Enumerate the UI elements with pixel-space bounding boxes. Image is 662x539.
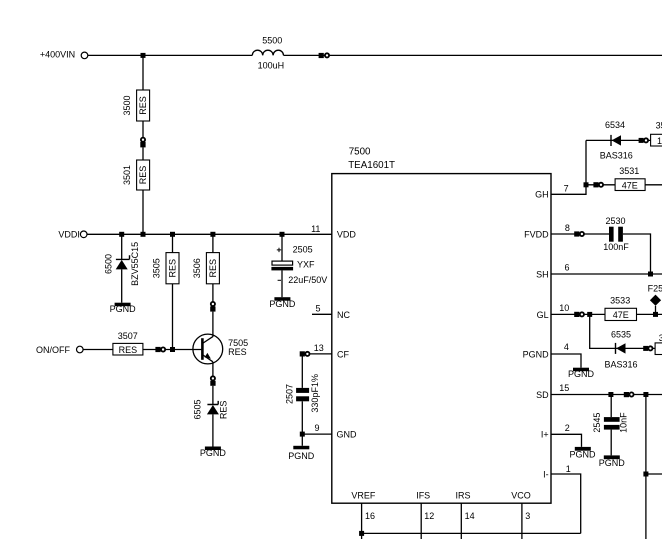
svg-text:RES: RES [167,259,177,278]
svg-text:6534: 6534 [605,120,625,130]
svg-text:NC: NC [337,310,350,320]
svg-text:SH: SH [536,269,549,279]
svg-text:F255: F255 [648,283,662,293]
svg-text:9: 9 [315,423,320,433]
svg-text:5: 5 [316,303,321,313]
svg-text:PGND: PGND [269,299,296,309]
svg-text:BZV55C15: BZV55C15 [130,242,140,286]
svg-text:PGND: PGND [569,449,596,459]
svg-text:VCO: VCO [511,491,531,501]
svg-text:2: 2 [565,423,570,433]
svg-text:100uH: 100uH [258,61,285,71]
svg-text:3530: 3530 [656,121,662,131]
svg-text:3533: 3533 [610,296,630,306]
svg-text:IRS: IRS [456,491,471,501]
svg-text:VREF: VREF [351,491,376,501]
svg-text:100nF: 100nF [603,242,629,252]
svg-text:I-: I- [543,469,549,479]
svg-text:TEA1601T: TEA1601T [348,160,395,171]
svg-text:BAS316: BAS316 [600,150,633,160]
svg-text:IFS: IFS [416,491,430,501]
svg-text:6535: 6535 [611,329,631,339]
svg-text:YXF: YXF [297,259,315,269]
svg-text:GL: GL [537,310,549,320]
svg-text:ON/OFF: ON/OFF [36,345,70,355]
svg-text:10nF: 10nF [619,412,629,433]
svg-text:RES: RES [219,401,229,420]
svg-text:FVDD: FVDD [524,230,549,240]
svg-text:PGND: PGND [288,451,315,461]
svg-text:VDD: VDD [337,230,357,240]
svg-text:5500: 5500 [262,35,282,45]
svg-text:22uF/50V: 22uF/50V [288,275,327,285]
svg-text:+400VIN: +400VIN [40,50,75,60]
svg-text:3531: 3531 [619,166,639,176]
svg-text:10: 10 [559,303,569,313]
svg-text:2507: 2507 [284,384,294,404]
svg-text:2505: 2505 [293,244,313,254]
svg-text:SD: SD [536,390,549,400]
svg-text:PGND: PGND [110,304,137,314]
svg-text:PGND: PGND [523,349,550,359]
svg-text:13: 13 [314,343,324,353]
svg-text:15: 15 [559,383,569,393]
svg-text:16: 16 [365,511,375,521]
svg-text:RES: RES [138,166,148,185]
svg-text:BAS316: BAS316 [604,360,637,370]
svg-text:3505: 3505 [151,258,161,278]
svg-text:GH: GH [535,190,549,200]
svg-text:2545: 2545 [592,413,602,433]
svg-text:47E: 47E [613,310,629,320]
svg-text:6500: 6500 [104,254,114,274]
svg-text:4: 4 [564,342,569,352]
svg-text:12: 12 [424,511,434,521]
svg-text:7: 7 [564,183,569,193]
svg-text:3501: 3501 [122,165,132,185]
svg-text:PGND: PGND [200,448,227,458]
svg-text:3500: 3500 [122,95,132,115]
svg-text:8: 8 [565,223,570,233]
svg-text:1: 1 [566,464,571,474]
svg-text:6505: 6505 [192,399,202,419]
svg-text:14: 14 [465,511,475,521]
svg-text:3506: 3506 [192,258,202,278]
svg-text:330pF1%: 330pF1% [310,374,320,413]
svg-text:PGND: PGND [568,369,595,379]
svg-text:6: 6 [565,263,570,273]
svg-text:10E: 10E [657,136,662,146]
svg-text:3: 3 [525,511,530,521]
svg-text:7500: 7500 [349,146,371,157]
svg-text:RES: RES [208,259,218,278]
svg-text:2530: 2530 [605,216,625,226]
svg-text:47E: 47E [622,180,638,190]
svg-text:I+: I+ [541,430,549,440]
svg-text:RES: RES [138,96,148,115]
svg-text:VDDI: VDDI [58,230,80,240]
svg-text:GND: GND [337,430,358,440]
svg-text:CF: CF [337,349,349,359]
svg-text:11: 11 [311,224,320,234]
svg-text:RES: RES [119,345,138,355]
svg-text:RES: RES [228,347,247,357]
svg-text:PGND: PGND [599,458,626,468]
svg-text:3507: 3507 [118,331,138,341]
